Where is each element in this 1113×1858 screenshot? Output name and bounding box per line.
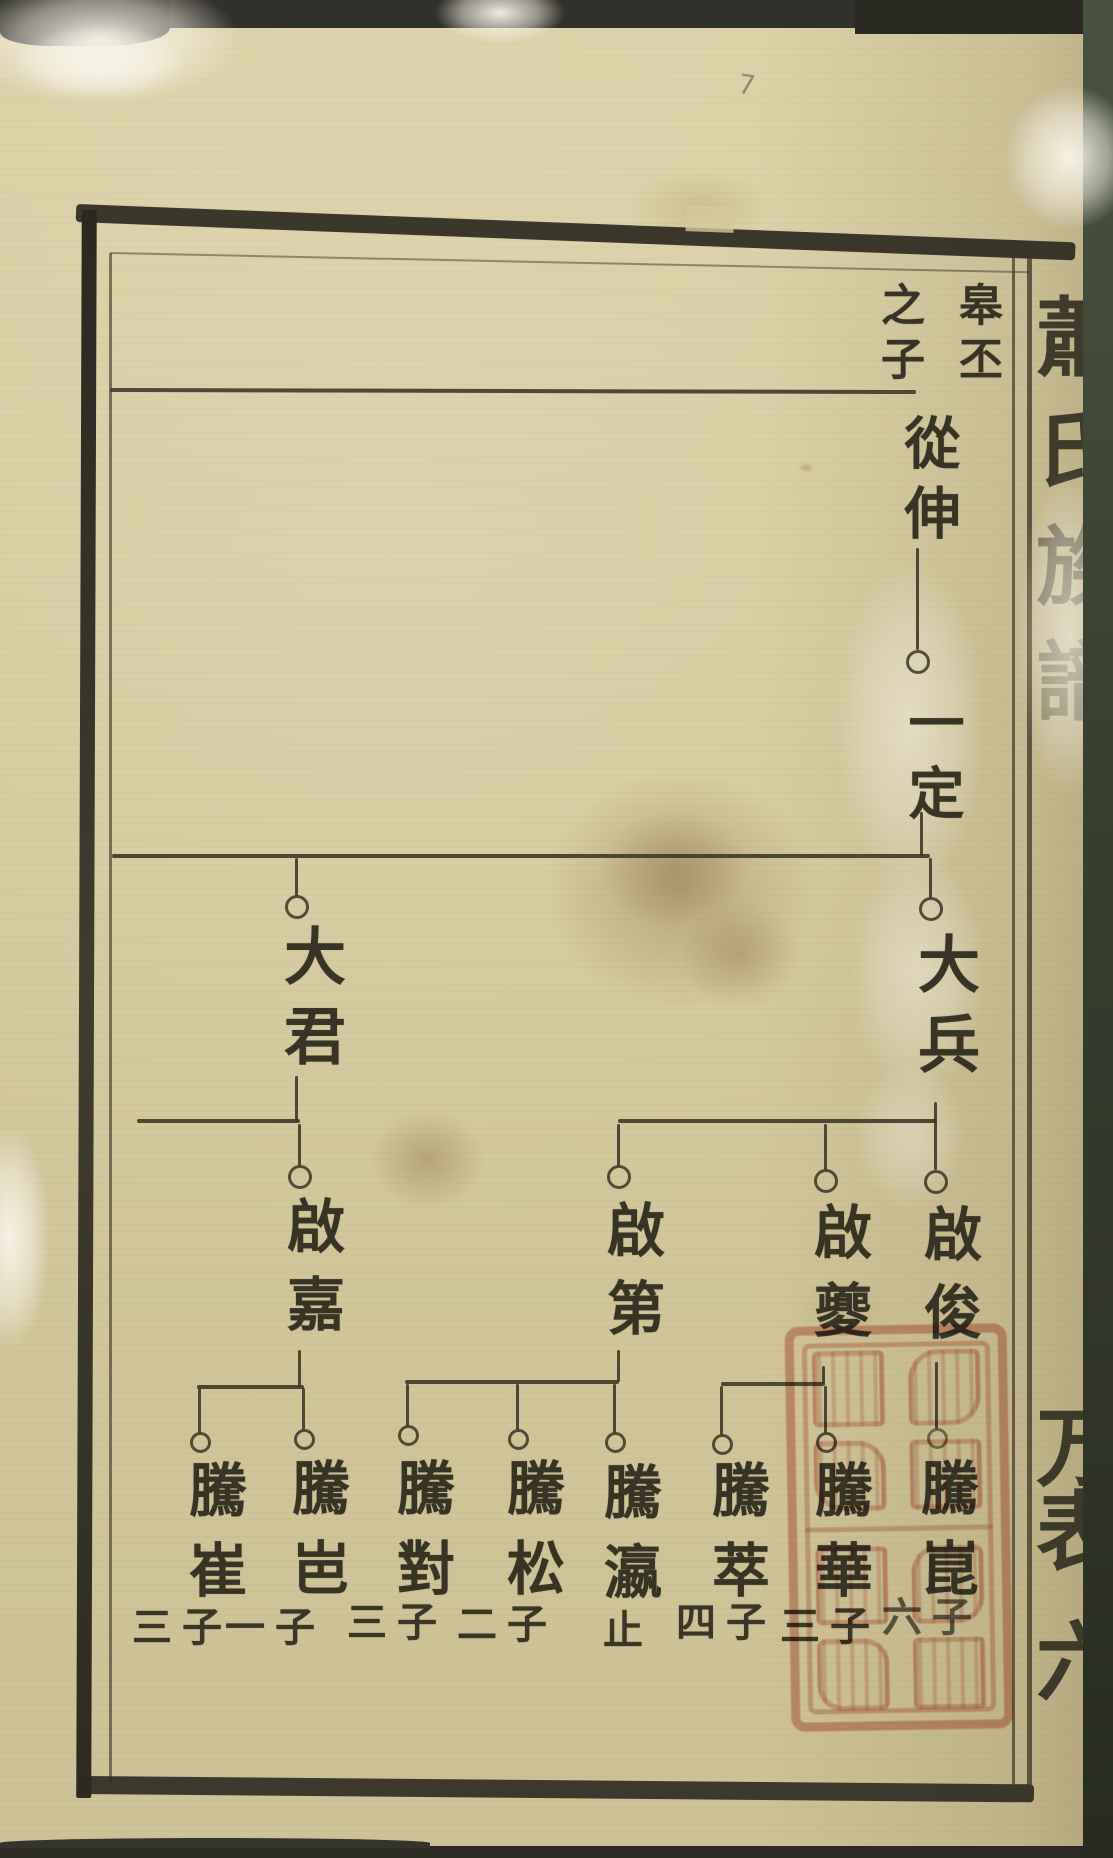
frame-border-right-outer-line	[1027, 250, 1032, 1785]
scanned-genealogy-page: 皋丕 之子 從伸 一定 大君 大兵 啟嘉 啟第 啟夔 啟俊	[0, 0, 1113, 1858]
stain-dot	[798, 462, 814, 473]
node-circle-tengsong	[508, 1429, 529, 1450]
book-edge-bottom-blob	[0, 1838, 430, 1848]
torn-paper-top-mid	[435, 0, 565, 44]
note-tengsong: 二子	[455, 1592, 559, 1650]
name-gen4-qijia: 啟嘉	[269, 1196, 353, 1406]
torn-paper-left-edge	[0, 1125, 50, 1350]
connector-tengsong-up	[516, 1384, 519, 1430]
node-circle-tengying	[605, 1432, 626, 1453]
seal-glyph	[817, 1638, 890, 1711]
node-circle-tengcui	[190, 1432, 211, 1453]
note-tengba: 一子	[223, 1595, 327, 1653]
node-circle-dajun	[285, 895, 309, 919]
frame-border-top	[76, 204, 1076, 260]
node-circle-qijia	[288, 1165, 312, 1189]
frame-inner-left-line	[109, 253, 112, 1783]
connector-tengcui2-up	[720, 1386, 723, 1435]
seal-glyph	[909, 1439, 982, 1510]
frame-border-right-inner-line	[1012, 250, 1015, 1785]
connector-tengdui-up	[406, 1384, 409, 1426]
rule-gen2	[112, 854, 930, 858]
note-tengying: 止	[576, 1598, 680, 1656]
connector-dajun-up	[295, 858, 298, 896]
seal-glyph	[812, 1350, 885, 1427]
node-circle-dabing	[919, 897, 943, 921]
name-gen3-dabing: 大兵	[898, 932, 988, 1152]
node-circle-qijun	[924, 1170, 948, 1194]
note-tengdui: 三子	[345, 1590, 449, 1648]
seal-glyph	[908, 1349, 981, 1426]
frame-border-bottom	[78, 1776, 1034, 1802]
seal-glyph	[911, 1545, 984, 1624]
node-circle-tengba	[294, 1429, 315, 1450]
name-gen4-qidi: 啟第	[589, 1200, 673, 1410]
rule-gen4-qidi	[405, 1380, 619, 1384]
torn-paper-top-right	[1005, 85, 1113, 230]
connector-qidi-up	[617, 1124, 620, 1166]
frame-border-top-gap	[686, 205, 735, 233]
seal-glyph	[815, 1546, 888, 1625]
seal-glyph	[813, 1440, 886, 1511]
stain-large-core-2	[680, 900, 800, 1010]
connector-qikui-up	[824, 1124, 827, 1170]
frame-inner-top-line	[110, 252, 1030, 273]
frame-border-left	[76, 210, 97, 1798]
torn-paper-top-left-2	[15, 25, 185, 100]
book-fore-edge-right	[1083, 0, 1113, 1858]
pencil-mark: 7	[736, 69, 758, 102]
stain-medium	[370, 1110, 485, 1210]
name-gen2: 一定	[892, 694, 973, 894]
node-circle-yiding	[906, 650, 930, 674]
name-gen3-dajun: 大君	[264, 924, 354, 1144]
book-edge-top-right-blob	[855, 0, 1113, 34]
name-gen1: 從伸	[888, 414, 969, 614]
node-circle-qikui	[814, 1169, 838, 1193]
seal-glyph	[913, 1637, 986, 1710]
rule-header	[110, 388, 916, 394]
note-tengcui: 三子	[130, 1595, 234, 1653]
note-tengcui2: 四子	[674, 1590, 778, 1648]
node-circle-tengdui	[398, 1425, 419, 1446]
connector-tengcui-up	[198, 1388, 201, 1433]
node-circle-qidi	[607, 1165, 631, 1189]
node-circle-tengcui2	[712, 1434, 733, 1455]
rule-gen3-right	[618, 1119, 937, 1123]
red-collection-seal	[784, 1323, 1013, 1732]
